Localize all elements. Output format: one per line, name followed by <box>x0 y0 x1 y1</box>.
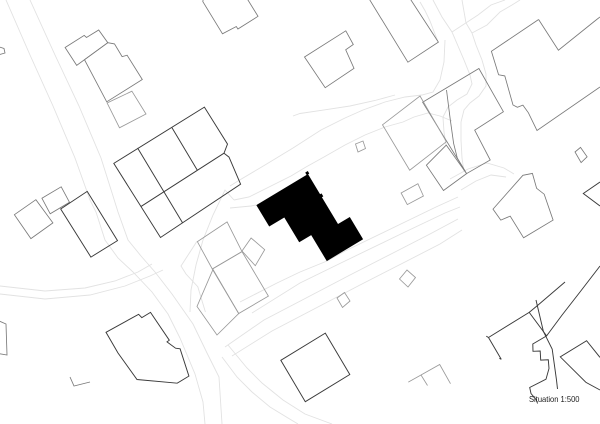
svg-text:Situation 1:500: Situation 1:500 <box>529 394 580 404</box>
